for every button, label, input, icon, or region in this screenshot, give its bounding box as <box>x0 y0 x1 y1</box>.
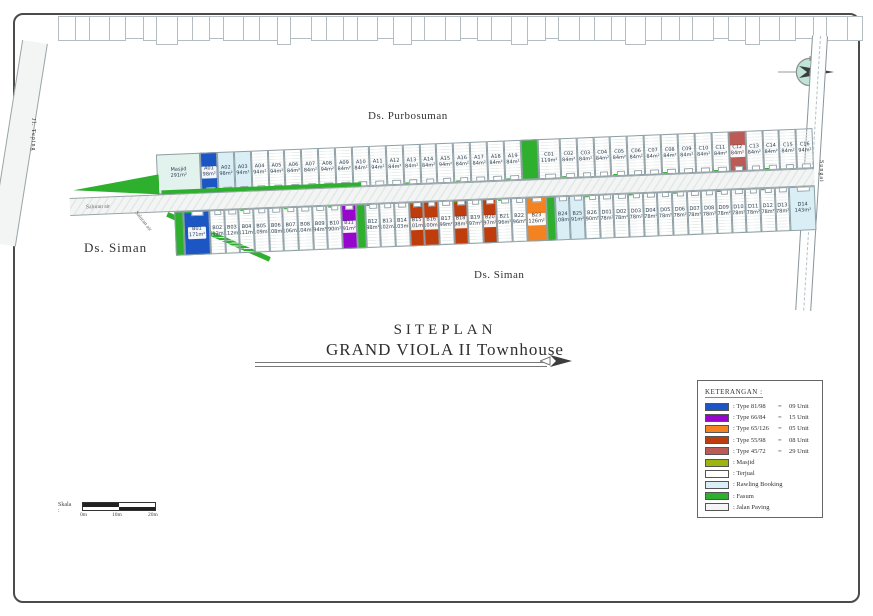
plot-label: C1694m² <box>798 142 812 154</box>
neighbor-parcel <box>357 16 378 41</box>
plot-label: B0994m² <box>313 222 327 234</box>
neighbor-parcel <box>143 16 157 41</box>
plot-A02: A0298m² <box>217 151 235 192</box>
plot-label: A0984m² <box>337 161 351 173</box>
neighbor-parcel <box>545 16 559 39</box>
plot-label: C0684m² <box>629 149 643 161</box>
plot-A14: A1484m² <box>419 143 437 184</box>
plot-A08: A0894m² <box>318 147 336 188</box>
neighbor-parcel <box>259 16 278 41</box>
neighbor-parcel-strip <box>58 16 862 41</box>
plot-A03: A0394m² <box>234 151 252 192</box>
title-rule <box>255 362 547 367</box>
neighbor-parcel <box>326 16 344 41</box>
plot-label: D1078m² <box>732 205 746 217</box>
plot-label: B1090m² <box>328 221 342 233</box>
neighbor-parcel <box>645 16 662 41</box>
fasum-strip <box>521 139 539 180</box>
neighbor-parcel <box>728 16 746 41</box>
neighbor-parcel <box>477 16 492 41</box>
plot-A10: A1084m² <box>352 146 370 187</box>
legend-equals: = <box>778 448 785 455</box>
scale-bar <box>82 502 156 511</box>
plot-label: B06108m² <box>268 224 284 236</box>
legend-swatch <box>705 492 729 500</box>
plot-A13: A1384m² <box>402 144 420 185</box>
plot-label: C1384m² <box>747 144 761 156</box>
legend-title: KETERANGAN : <box>705 388 763 398</box>
plot-label: B03112m² <box>224 225 240 237</box>
neighbor-parcel <box>223 16 244 41</box>
plot-label: B2296m² <box>512 214 526 226</box>
plot-label: B2196m² <box>498 215 512 227</box>
neighbor-parcel <box>277 16 291 45</box>
plot-A04: A0494m² <box>251 150 269 191</box>
neighbor-parcel <box>445 16 461 41</box>
legend-unit-count: 09 Unit <box>789 403 815 410</box>
plot-label: A0784m² <box>304 162 318 174</box>
plot-A06: A0684m² <box>284 149 302 190</box>
legend-row-7: : Rawling Booking <box>698 479 822 490</box>
plot-label: A0198m² <box>201 166 217 178</box>
legend-unit-count: 05 Unit <box>789 425 815 432</box>
plot-label: B2690m² <box>585 211 599 223</box>
neighbor-parcel <box>558 16 580 41</box>
scale-tick-2: 20m <box>148 512 158 518</box>
plot-label: D1378m² <box>776 203 790 215</box>
plot-label: B1298m² <box>366 220 380 232</box>
plot-label: D0878m² <box>703 206 717 218</box>
legend-label: : Type 81/98 <box>733 403 774 410</box>
legend-row-8: : Fasum <box>698 491 822 502</box>
plot-label: B1898m² <box>453 216 469 228</box>
plot-C03: C0384m² <box>576 137 594 178</box>
legend-swatch <box>705 403 729 411</box>
legend-row-5: : Masjid <box>698 457 822 468</box>
plot-C06: C0684m² <box>627 135 645 176</box>
plot-C14: C1484m² <box>762 129 780 170</box>
plot-C10: C1084m² <box>694 132 712 173</box>
plot-label: D0278m² <box>615 210 629 222</box>
plot-label: B13102m² <box>379 219 395 231</box>
plot-label: B2591m² <box>571 212 585 224</box>
plot-label: B2097m² <box>482 215 498 227</box>
neighbor-parcel <box>311 16 327 41</box>
plot-label: C0984m² <box>680 147 694 159</box>
plot-label: A0494m² <box>253 164 267 176</box>
plot-C07: C0784m² <box>644 134 662 175</box>
title-block: SITEPLAN GRAND VIOLA II Townhouse <box>250 322 640 360</box>
neighbor-parcel <box>290 16 312 39</box>
legend-row-9: : Jalan Paving <box>698 502 822 513</box>
plot-label: D1278m² <box>761 204 775 216</box>
neighbor-parcel <box>511 16 528 45</box>
plot-label: B1997m² <box>469 216 483 228</box>
plot-label: C0384m² <box>579 151 593 163</box>
plot-label: B1191m² <box>341 221 357 233</box>
siteplan-sheet: Jl. Teping Sungai Masjid291m²A0198m²A029… <box>0 0 873 616</box>
neighbor-parcel <box>713 16 729 39</box>
plot-C01: C01119m² <box>537 138 561 179</box>
plot-C11: C1184m² <box>711 132 729 173</box>
legend-equals: = <box>778 403 785 410</box>
legend-label: : Masjid <box>733 459 774 466</box>
plot-label: A1194m² <box>371 160 385 172</box>
legend-box: KETERANGAN : : Type 81/98=09 Unit: Type … <box>697 380 823 518</box>
plot-label: D0978m² <box>717 206 731 218</box>
plot-label: B08104m² <box>297 222 313 234</box>
neighbor-parcel <box>491 16 512 41</box>
plot-B01: B01171m² <box>183 210 211 255</box>
legend-row-1: : Type 66/84=15 Unit <box>698 412 822 423</box>
plot-label: A1984m² <box>506 154 520 166</box>
legend-unit-count: 08 Unit <box>789 437 815 444</box>
plot-label: D0178m² <box>600 210 614 222</box>
legend-swatch <box>705 481 729 489</box>
plot-label: C01119m² <box>541 153 558 165</box>
legend-label: : Fasum <box>733 493 774 500</box>
plot-C13: C1384m² <box>745 130 763 171</box>
page-subtitle: GRAND VIOLA II Townhouse <box>250 340 640 360</box>
neighbor-parcel <box>209 16 224 39</box>
legend-swatch <box>705 470 729 478</box>
plot-C12: C1284m² <box>728 131 746 172</box>
legend-swatch <box>705 459 729 467</box>
plot-C08: C0884m² <box>661 134 679 175</box>
plot-label: D0378m² <box>629 209 643 221</box>
neighbor-parcel <box>460 16 478 39</box>
plot-C05: C0584m² <box>610 136 628 177</box>
legend-equals: = <box>778 437 785 444</box>
neighbor-parcel <box>89 16 110 41</box>
plot-A18: A1884m² <box>487 141 505 182</box>
neighbor-parcel <box>661 16 680 41</box>
neighbor-parcel <box>75 16 90 41</box>
plot-label: B23126m² <box>527 213 546 225</box>
legend-label: : Type 66/84 <box>733 414 774 421</box>
plot-label: B07106m² <box>282 223 298 235</box>
neighbor-parcel <box>594 16 612 41</box>
plot-label: A1594m² <box>439 157 453 169</box>
plot-C09: C0984m² <box>678 133 696 174</box>
plot-label: A0394m² <box>236 165 250 177</box>
plot-label: D0778m² <box>688 207 702 219</box>
plot-label: C1284m² <box>730 145 746 157</box>
plot-A07: A0784m² <box>301 148 319 189</box>
plot-A09: A0984m² <box>335 147 353 188</box>
legend-label: : Terjual <box>733 470 774 477</box>
legend-swatch <box>705 425 729 433</box>
legend-row-0: : Type 81/98=09 Unit <box>698 401 822 412</box>
legend-label: : Rawling Booking <box>733 481 782 488</box>
neighbor-parcel <box>692 16 714 41</box>
legend-swatch <box>705 503 729 511</box>
neighbor-parcel <box>156 16 178 45</box>
neighbor-parcel <box>109 16 126 41</box>
plot-C15: C1584m² <box>779 129 797 170</box>
legend-equals: = <box>778 425 785 432</box>
neighbor-parcel <box>611 16 626 41</box>
plot-label: C1184m² <box>714 146 728 158</box>
plot-label: D0578m² <box>659 208 673 220</box>
plot-C02: C0284m² <box>559 138 577 179</box>
plot-label: A1784m² <box>472 156 486 168</box>
plot-label: C1484m² <box>764 144 778 156</box>
plot-label: C0284m² <box>562 152 576 164</box>
plot-label: C0484m² <box>596 151 610 163</box>
legend-row-3: : Type 55/98=08 Unit <box>698 435 822 446</box>
neighbor-parcel <box>58 16 76 41</box>
plot-label: C1584m² <box>781 143 795 155</box>
plot-label: A0594m² <box>270 164 284 176</box>
neighbor-parcel <box>847 16 863 41</box>
plot-label: A0298m² <box>219 166 233 178</box>
plot-label: A1484m² <box>422 158 436 170</box>
plot-A11: A1194m² <box>369 145 387 186</box>
plot-label: C0884m² <box>663 148 677 160</box>
legend-row-4: : Type 45/72=29 Unit <box>698 446 822 457</box>
plot-label: B01171m² <box>188 227 207 239</box>
plot-label: B1799m² <box>439 217 453 229</box>
plot-label: B24108m² <box>555 212 571 224</box>
legend-swatch <box>705 414 729 422</box>
neighbor-parcel <box>679 16 693 41</box>
neighbor-parcel <box>393 16 412 45</box>
legend-unit-count: 29 Unit <box>789 448 815 455</box>
legend-unit-count: 15 Unit <box>789 414 815 421</box>
river-label: Sungai <box>818 160 824 183</box>
plot-C04: C0484m² <box>593 136 611 177</box>
neighbor-parcel <box>243 16 260 41</box>
plot-label: B14103m² <box>394 219 410 231</box>
scale-label: Skala : <box>58 502 71 514</box>
plot-label: B15101m² <box>409 218 425 230</box>
legend-label: : Jalan Paving <box>733 504 774 511</box>
scale-tick-0: 0m <box>80 512 87 518</box>
neighbor-parcel <box>625 16 646 45</box>
region-label-purbosuman: Ds. Purbosuman <box>368 110 448 122</box>
legend-equals: = <box>778 414 785 421</box>
plot-A17: A1784m² <box>470 141 488 182</box>
plot-label: B16100m² <box>423 217 439 229</box>
neighbor-parcel <box>424 16 446 41</box>
legend-label: : Type 45/72 <box>733 448 774 455</box>
legend-rows: : Type 81/98=09 Unit: Type 66/84=15 Unit… <box>698 401 822 513</box>
plot-D14: D14143m² <box>789 186 817 231</box>
plot-A19: A1984m² <box>504 140 522 181</box>
legend-label: : Type 65/126 <box>733 425 774 432</box>
plot-A16: A1684m² <box>453 142 471 183</box>
neighbor-parcel <box>192 16 210 41</box>
plot-label: D0478m² <box>644 209 658 221</box>
neighbor-parcel <box>125 16 144 39</box>
plot-A15: A1594m² <box>436 143 454 184</box>
page-title: SITEPLAN <box>250 322 640 339</box>
neighbor-parcel <box>759 16 780 41</box>
neighbor-parcel <box>343 16 358 41</box>
left-road-label: Jl. Teping <box>30 118 36 151</box>
neighbor-parcel <box>579 16 595 41</box>
neighbor-parcel <box>826 16 848 41</box>
plot-B23: B23126m² <box>526 197 548 242</box>
plot-label: B04111m² <box>238 225 254 237</box>
plot-label: A1284m² <box>388 159 402 171</box>
canal-label-a: Saluran air <box>86 204 110 211</box>
neighbor-parcel <box>779 16 796 41</box>
neighbor-parcel <box>745 16 760 45</box>
plot-label: C1084m² <box>697 147 711 159</box>
scale-tick-1: 10m <box>112 512 122 518</box>
plot-label: D1178m² <box>746 205 760 217</box>
plot-label: B02113m² <box>209 226 225 238</box>
plot-label: A1384m² <box>405 158 419 170</box>
plot-A01: A0198m² <box>200 152 218 193</box>
neighbor-parcel <box>377 16 394 39</box>
neighbor-parcel <box>411 16 425 41</box>
region-label-siman-south: Ds. Siman <box>474 269 524 281</box>
title-arrow-icon <box>540 353 574 374</box>
plot-label: C0784m² <box>646 149 660 161</box>
legend-row-2: : Type 65/126=05 Unit <box>698 423 822 434</box>
plot-label: A0894m² <box>320 162 334 174</box>
compass-icon <box>778 52 836 97</box>
plot-label: D0678m² <box>673 208 687 220</box>
legend-row-6: : Terjual <box>698 468 822 479</box>
plot-label: A0684m² <box>287 163 301 175</box>
plot-A05: A0594m² <box>267 149 285 190</box>
plot-C16: C1694m² <box>796 128 814 169</box>
legend-swatch <box>705 447 729 455</box>
neighbor-parcel <box>177 16 193 41</box>
plot-label: D14143m² <box>794 203 811 215</box>
plot-label: A1684m² <box>455 156 469 168</box>
plot-A12: A1284m² <box>386 145 404 186</box>
plot-label: B05109m² <box>253 224 269 236</box>
plot-label: C0584m² <box>612 150 626 162</box>
region-label-siman-west: Ds. Siman <box>84 240 147 256</box>
neighbor-parcel <box>527 16 546 41</box>
legend-label: : Type 55/98 <box>733 437 774 444</box>
plot-label: Masjid291m² <box>170 168 187 180</box>
legend-swatch <box>705 436 729 444</box>
plot-label: A1884m² <box>489 155 503 167</box>
plot-label: A1084m² <box>354 160 368 172</box>
